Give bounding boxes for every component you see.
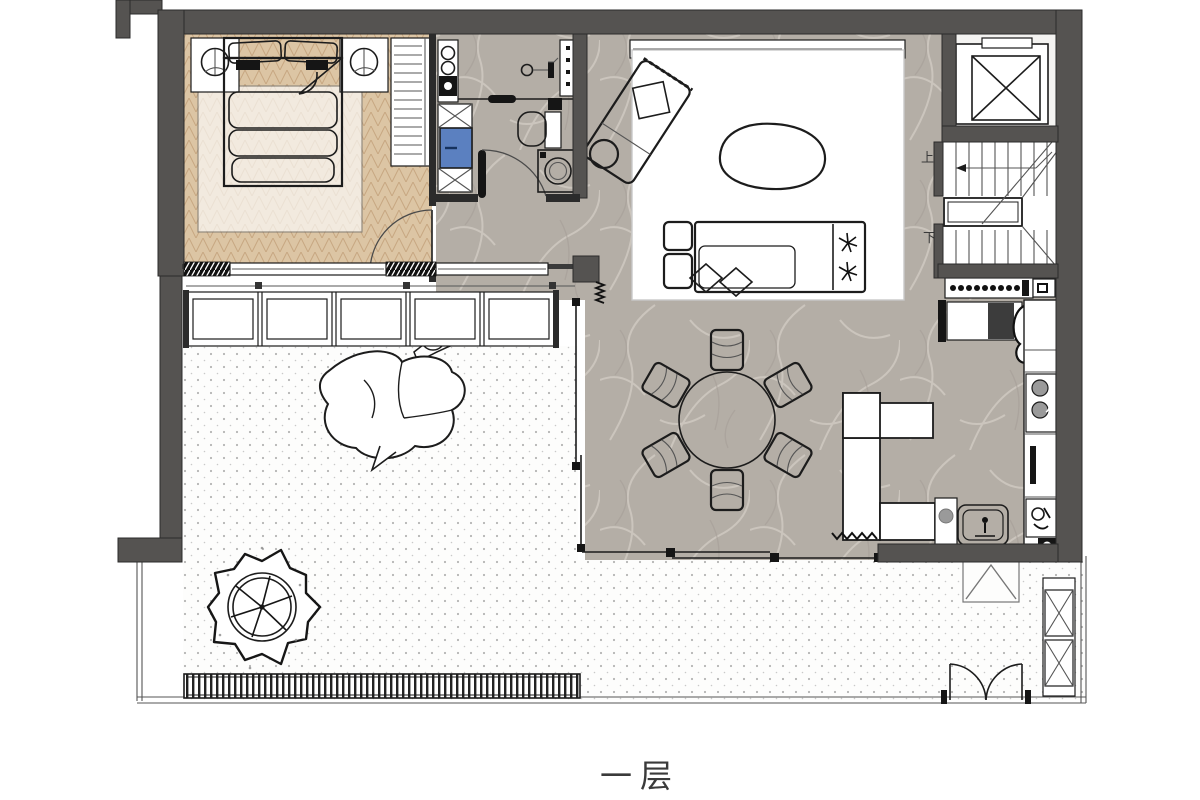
wall-top (158, 10, 1082, 34)
nightstand-left (191, 38, 239, 92)
planter-bench-row (183, 282, 575, 348)
shower-head-icon (548, 62, 554, 78)
wardrobe (391, 38, 433, 166)
counter-L (938, 300, 1022, 342)
wall-elevator-bottom (942, 126, 1058, 142)
elevator-door (982, 38, 1032, 48)
drain-grate (184, 674, 580, 698)
wall-stairs-bottom (938, 264, 1058, 278)
kitchen-sink (1026, 374, 1056, 432)
kitchenette (438, 40, 458, 102)
nightstand-right (340, 38, 388, 92)
wall-left-lower (160, 276, 182, 544)
wall-bottom-right (878, 544, 1058, 562)
south-wall-windows (182, 262, 578, 276)
wall-right (1056, 10, 1082, 562)
elevator (944, 34, 1058, 128)
vanity (438, 104, 472, 192)
shower-door-handle (488, 95, 516, 103)
wall-left-upper (158, 10, 184, 276)
wall-bath-living (573, 34, 587, 198)
radiator-hatch (386, 262, 436, 276)
bar-counter (945, 278, 1055, 298)
trellis-column (1043, 578, 1075, 696)
kitchen-wall-units (1024, 300, 1058, 554)
radiator-hatch (184, 262, 230, 276)
wc-fixture (1026, 499, 1056, 537)
wall-elevator-left (942, 34, 956, 134)
living-rug (632, 50, 904, 300)
entry-step (963, 560, 1019, 602)
stairs-up-label: 上 (921, 150, 934, 165)
floor-label: 一层 (600, 758, 680, 794)
floor-plan-svg: 上 下 (0, 0, 1200, 800)
floor-plan-page: 上 下 (0, 0, 1200, 800)
wall-bedroom-bath (429, 34, 436, 206)
